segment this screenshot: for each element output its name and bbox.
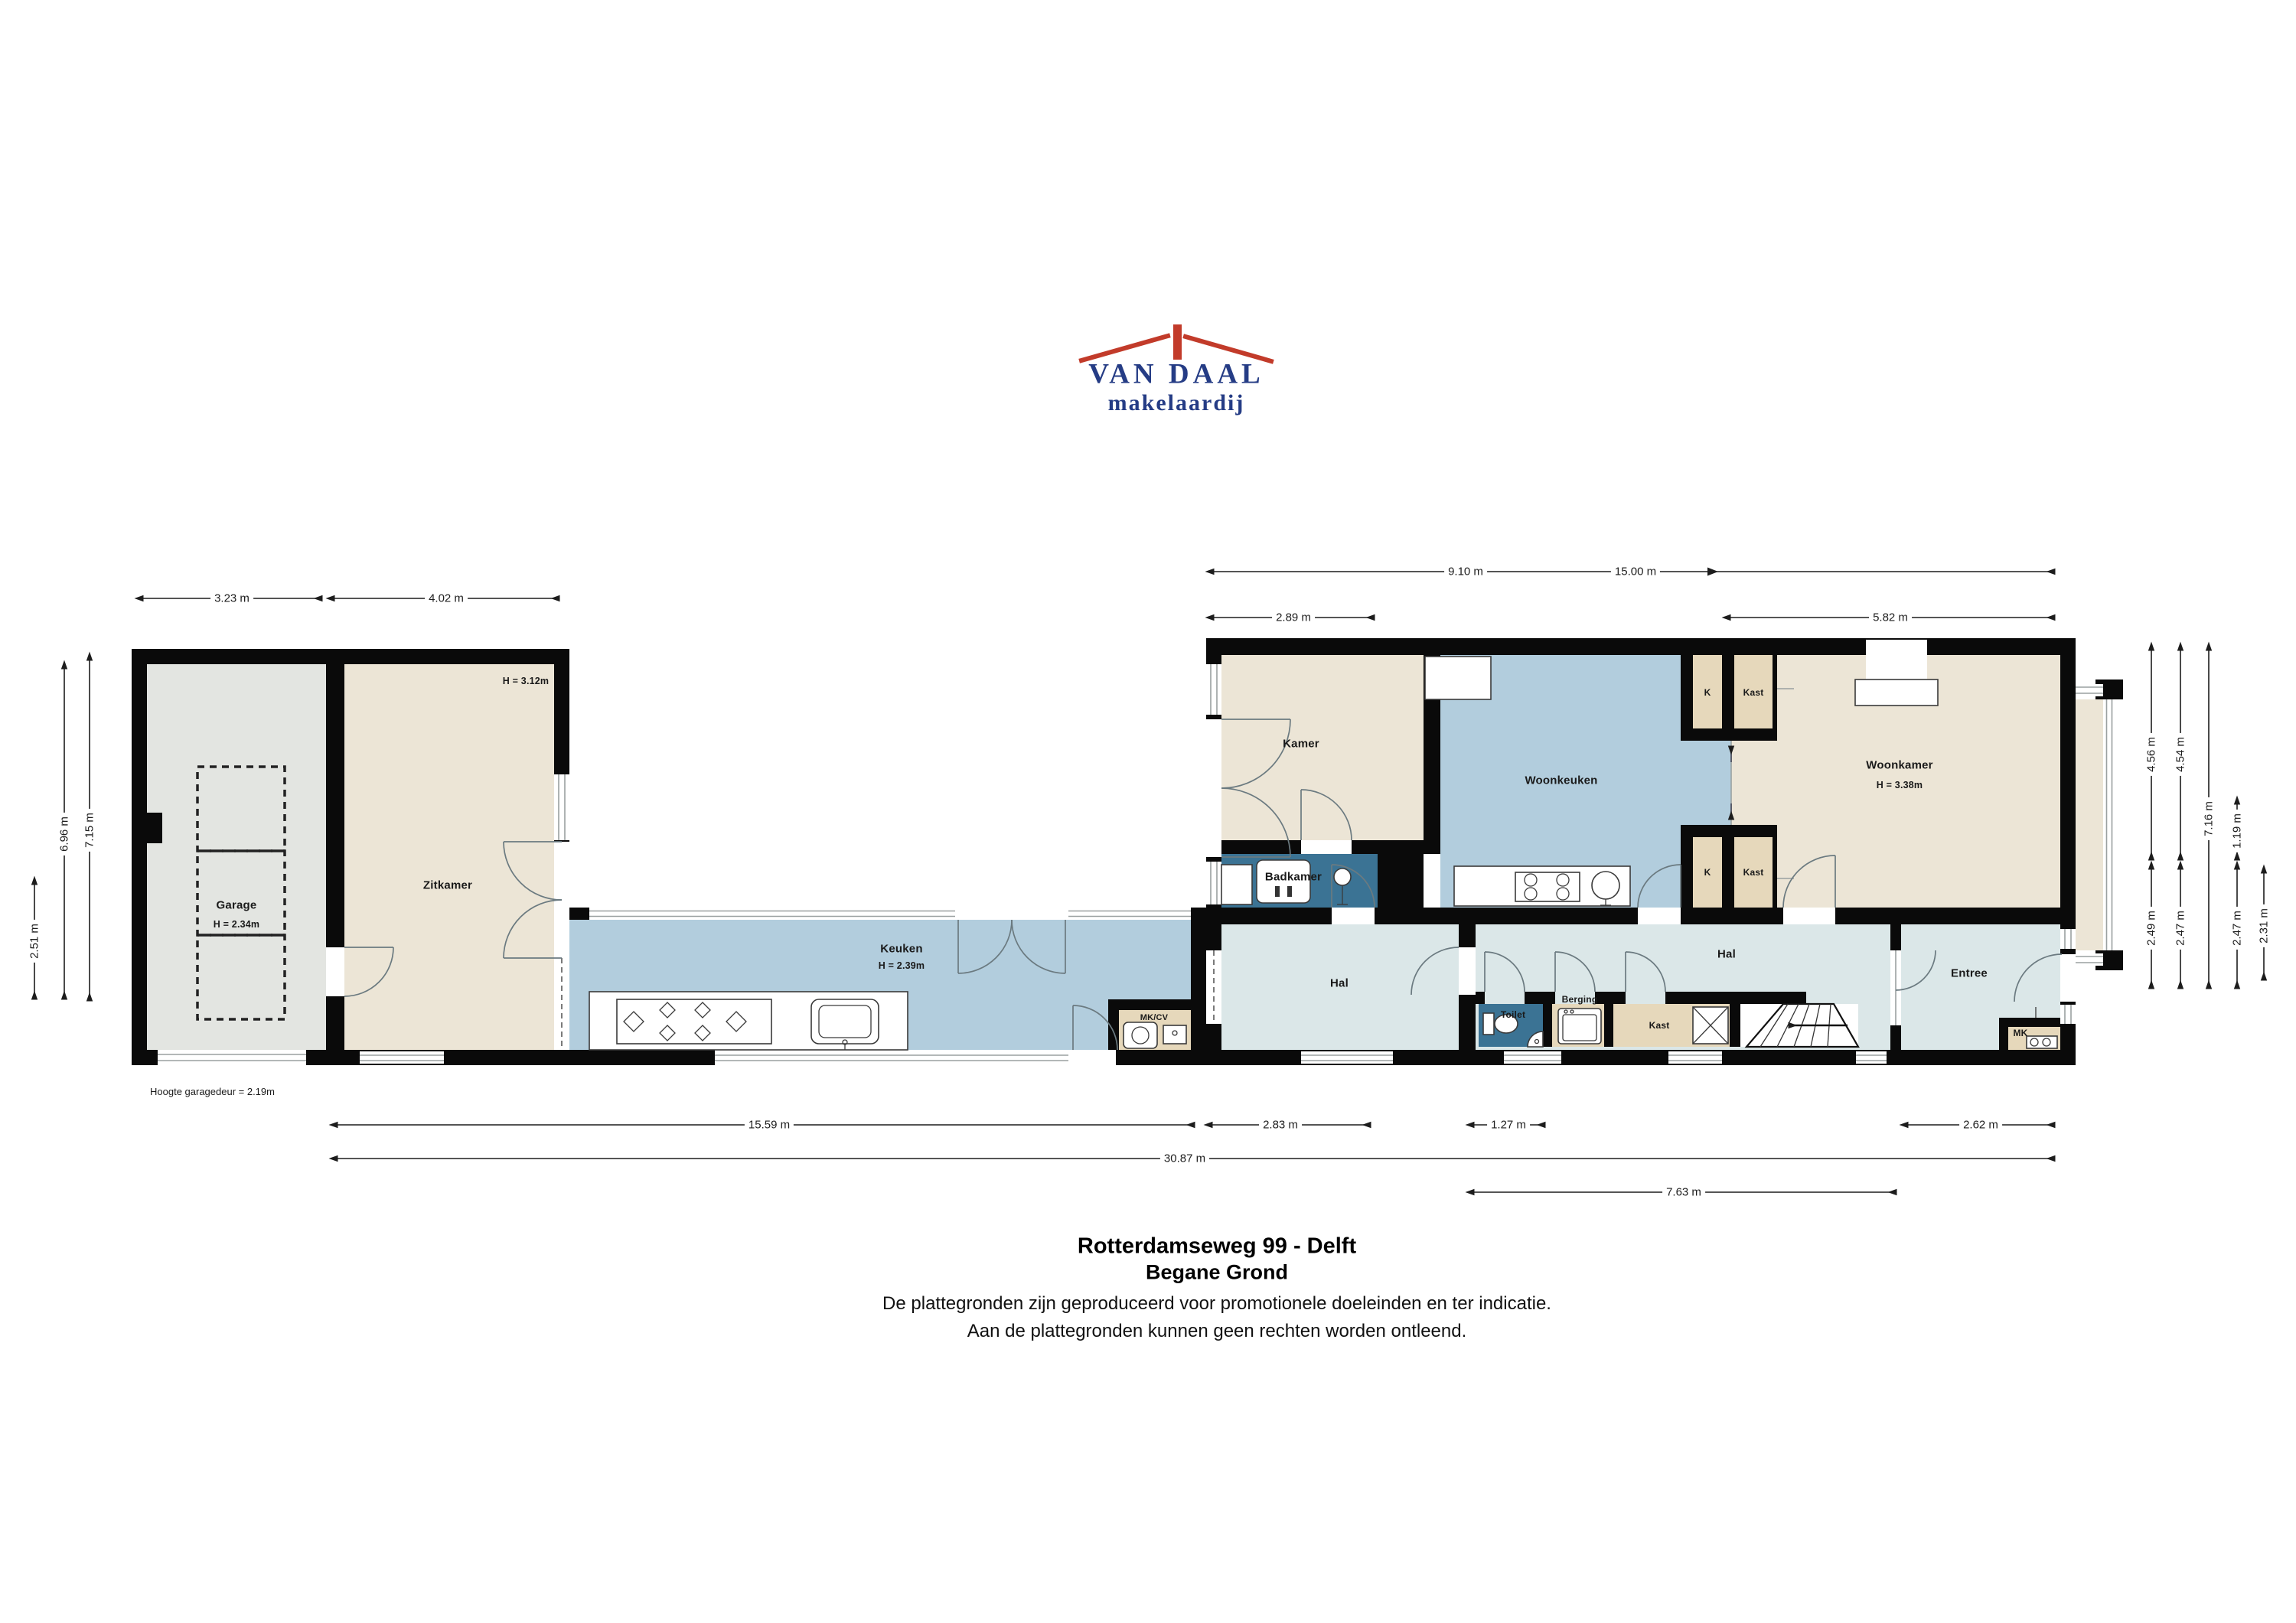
floorplan-drawing (0, 0, 2296, 1623)
dim-bottom-total: 30.87 m (1160, 1152, 1209, 1165)
dim-right-h8: 2.31 m (2258, 904, 2271, 947)
dim-right-h3: 7.16 m (2203, 797, 2216, 840)
closet-label-k-onder: K (1704, 867, 1711, 878)
room-floors (147, 655, 2103, 1050)
dim-right-h2: 4.54 m (2174, 733, 2187, 776)
dim-right-h1: 4.56 m (2145, 733, 2158, 776)
room-height-garage: H = 2.34m (214, 919, 260, 930)
kitchen-counter-icon (589, 992, 908, 1050)
floorplan-page: VAN DAAL makelaardij Garage H = 2.34m Zi… (0, 0, 2296, 1623)
closet-x-icon (1693, 1007, 1728, 1044)
room-label-woonkamer: Woonkamer (1866, 759, 1932, 772)
room-label-woonkeuken: Woonkeuken (1525, 774, 1597, 787)
page-title: Rotterdamseweg 99 - Delft (1078, 1234, 1356, 1260)
dim-right-h6: 2.47 m (2174, 907, 2187, 950)
dim-bottom-hal: 2.83 m (1259, 1119, 1302, 1132)
room-label-mk: MK (2013, 1028, 2027, 1038)
washer-icon (1558, 1009, 1601, 1044)
dim-bottom-hal2: 7.63 m (1662, 1186, 1705, 1199)
room-height-zitkamer: H = 3.12m (503, 676, 550, 686)
dim-left-small: 2.51 m (28, 920, 41, 963)
logo-roof-icon (1081, 324, 1271, 361)
woonkeuken-counter-icon (1454, 866, 1630, 906)
room-label-zitkamer: Zitkamer (423, 879, 472, 892)
room-height-keuken: H = 2.39m (879, 960, 925, 971)
closet-label-kast-boven: Kast (1743, 687, 1764, 698)
disclaimer-line2: Aan de plattegronden kunnen geen rechten… (967, 1321, 1467, 1342)
room-label-berging: Berging (1562, 994, 1598, 1005)
garage-door-note: Hoogte garagedeur = 2.19m (150, 1086, 275, 1097)
fireplace-icon (1855, 640, 1938, 706)
closet-label-kast-onder: Kast (1743, 867, 1764, 878)
dim-right-h4: 1.19 m (2231, 810, 2244, 852)
room-label-hal-west: Hal (1330, 977, 1349, 990)
dim-bottom-keuken: 15.59 m (745, 1119, 794, 1132)
room-label-kamer: Kamer (1283, 738, 1319, 751)
room-label-toilet: Toilet (1501, 1009, 1525, 1020)
room-label-badkamer: Badkamer (1265, 871, 1322, 884)
dim-right-total: 15.00 m (1611, 565, 1660, 578)
dim-left-inner: 6.96 m (58, 813, 71, 855)
dim-right-h5: 2.49 m (2145, 907, 2158, 950)
room-label-keuken: Keuken (880, 943, 922, 956)
dim-right-h7: 2.47 m (2231, 907, 2244, 950)
dim-right-sub: 9.10 m (1444, 565, 1487, 578)
dim-kamer-width: 2.89 m (1272, 611, 1315, 624)
room-height-woonkamer: H = 3.38m (1877, 780, 1923, 790)
disclaimer-line1: De plattegronden zijn geproduceerd voor … (882, 1293, 1551, 1315)
room-label-mkcv: MK/CV (1140, 1013, 1168, 1022)
page-subtitle: Begane Grond (1146, 1261, 1288, 1285)
dim-left-total: 7.15 m (83, 809, 96, 852)
dim-garage-width: 3.23 m (210, 592, 253, 605)
dim-zitkamer-width: 4.02 m (425, 592, 468, 605)
closet-label-k-boven: K (1704, 687, 1711, 698)
logo-subtitle: makelaardij (1108, 390, 1245, 416)
cupboard-icon (1425, 657, 1491, 699)
room-label-hal-oost: Hal (1717, 948, 1736, 961)
logo-name: VAN DAAL (1088, 358, 1264, 391)
dim-bottom-toilet: 1.27 m (1487, 1119, 1530, 1132)
room-label-garage: Garage (217, 899, 257, 912)
dim-bottom-entree: 2.62 m (1959, 1119, 2002, 1132)
dim-woonkamer-width: 5.82 m (1869, 611, 1912, 624)
room-label-entree: Entree (1951, 967, 1988, 980)
room-label-kast: Kast (1649, 1020, 1670, 1031)
